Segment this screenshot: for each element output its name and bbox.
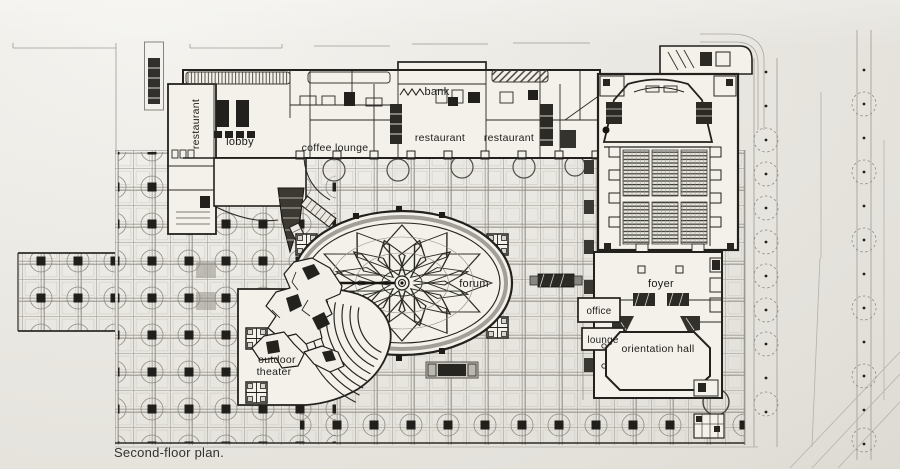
label-outdoor-theater-line2: theater [257,366,292,378]
floor-plan-drawing: restaurant lobby coffee lounge bank rest… [0,0,900,469]
label-lounge: lounge [587,335,618,346]
label-foyer: foyer [648,278,674,290]
label-office: office [586,306,611,317]
auditorium [598,46,752,253]
label-forum: forum [459,278,489,290]
label-restaurant-center: restaurant [415,132,465,144]
scanned-floor-plan-photo: restaurant lobby coffee lounge bank rest… [0,0,900,469]
label-coffee-lounge: coffee lounge [302,142,369,154]
escalator-bar [530,274,582,287]
label-orientation-hall: orientation hall [621,343,694,355]
label-lobby: lobby [226,136,254,148]
label-bank: bank [424,86,449,98]
street-trees [754,69,876,452]
caption-second-floor-plan: Second-floor plan. [114,445,224,460]
label-restaurant-right: restaurant [484,132,534,144]
south-annex [694,414,724,438]
fountain-pad [426,362,478,378]
label-restaurant-left: restaurant [190,99,202,149]
label-outdoor-theater-line1: outdoor [258,354,296,366]
